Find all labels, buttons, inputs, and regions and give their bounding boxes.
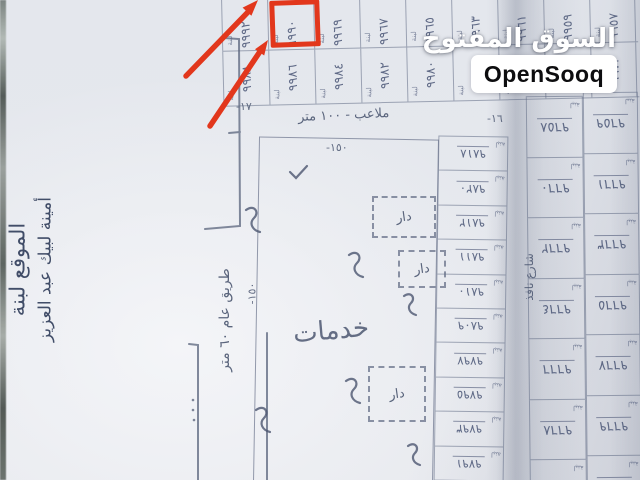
block-label: لبنة (570, 161, 580, 169)
plot-map-photo: ٩٩٩٢لبنة٩٩٩٠لبنة٩٩٦٩لبنة٩٩٦٧لبنة٩٩٦٥لبنة… (0, 0, 640, 480)
block-label: لبنة (493, 278, 503, 286)
west-plot-column: ٩٨١٨لبنة٩٨٢٠لبنة٩٨١٢لبنة٩٨١١لبنة٩٨١٠لبنة… (434, 136, 509, 480)
block-label: لبنة (227, 90, 235, 100)
dot-mark (193, 419, 196, 422)
block-label: لبنة (627, 339, 637, 347)
plot-cell: ٩٨١٠لبنة (436, 274, 506, 309)
block-label: لبنة (319, 88, 327, 98)
plot-cell: ٩٦٦٦لبنة (528, 339, 586, 400)
block-label: لبنة (573, 403, 583, 411)
plot-cell: ٩٦٦٧لبنة (585, 335, 640, 396)
plot-number: ٩٦٦٠ (538, 179, 573, 196)
block-label: لبنة (495, 140, 505, 148)
plot-number: ٩٦٥٨ (537, 118, 572, 135)
plot-number: ٩٧٩٧ (454, 352, 486, 367)
plot-cell: ٩٩٩٢لبنة (221, 0, 269, 51)
side-street-label: شارع نافذ (522, 222, 536, 332)
house-label: دار (395, 208, 413, 225)
plot-number: ٩٦٦٦ (540, 360, 575, 377)
plot-number: ٩٨١١ (456, 249, 488, 264)
plot-cell: ٩٩٨٢لبنة (360, 48, 407, 103)
block-label: لبنة (625, 97, 635, 105)
block-label: لبنة (627, 278, 637, 286)
plot-number: ٩٦٦٢ (538, 239, 573, 256)
plot-cell: ٩٨١١لبنة (436, 240, 506, 275)
handwritten-note: الموقع لبنة أمينة لبيك عبد العزيز (6, 155, 121, 385)
plot-cell: ٩٩٨٠لبنة (406, 46, 453, 101)
brand-logo: OpenSooq (471, 55, 617, 93)
plot-number: ٩٩٨٦ (285, 64, 301, 91)
plot-cell: ٩٧٩٥لبنة (435, 377, 505, 412)
services-area-outline (253, 136, 439, 480)
plot-cell: ٩٦٧٠لبنة (530, 460, 588, 480)
highlighted-plot-box (269, 0, 321, 48)
plot-number: ٩٩٨٢ (377, 61, 393, 88)
plot-number: ٩٦٦١ (594, 175, 629, 192)
plot-number: ٩٨٢٠ (457, 180, 489, 195)
note-line-2: أمينة لبيك عبد العزيز (36, 155, 56, 385)
plot-cell: ٩٩٨٤لبنة (314, 49, 361, 104)
plot-cell: ٩٦٦٣لبنة (584, 214, 640, 275)
note-line-1: الموقع لبنة (6, 155, 30, 385)
plot-cell: ٩٦٦٥لبنة (585, 274, 640, 335)
plot-number: ٩٨١٢ (456, 215, 488, 230)
plot-cell: ٩٩٦٧لبنة (359, 0, 407, 48)
plot-cell: ٩٦٧١لبنة (587, 456, 640, 480)
plot-cell: ٩٦٦٤لبنة (528, 278, 586, 339)
plot-number: ٩٩٩٢ (238, 21, 254, 48)
block-label: لبنة (571, 222, 581, 230)
plot-number: ٩٩٦٩ (330, 19, 346, 46)
main-road-label: طريق عام ٦٠ متر (217, 225, 257, 415)
block-label: لبنة (629, 460, 639, 468)
plot-number: ٩٨١٠ (455, 284, 487, 299)
dimension-top-width: -١٥٠ (326, 141, 348, 154)
block-label: لبنة (628, 399, 638, 407)
plot-cell: ٩٨١٨لبنة (438, 137, 508, 172)
block-label: لبنة (492, 347, 502, 355)
block-label: لبنة (411, 86, 419, 96)
plot-number: ٩٦٦٨ (540, 421, 575, 438)
plot-number: ٩٦٦٤ (539, 300, 574, 317)
block-label: لبنة (491, 450, 501, 458)
plot-number: ٩٧٩٣ (453, 421, 485, 436)
plot-number: ٩٨٠٩ (455, 318, 487, 333)
plot-cell: ٩٧٩٣لبنة (434, 412, 504, 447)
block-label: لبنة (572, 343, 582, 351)
street-edge-line (189, 344, 198, 480)
block-label: لبنة (365, 87, 373, 97)
plot-cell: ٩٨١٢لبنة (437, 205, 507, 240)
block-label: لبنة (491, 415, 501, 423)
plot-cell: ٩٦٦٠لبنة (526, 157, 584, 218)
house-label: دار (388, 385, 406, 402)
plot-number: ٩٦٦٣ (594, 235, 629, 252)
paper-edge (0, 0, 6, 480)
block-label: لبنة (626, 218, 636, 226)
block-label: لبنة (495, 175, 505, 183)
dimension-gap-right: -١٦ (487, 112, 503, 125)
street-tick (229, 132, 240, 133)
block-label: لبنة (226, 35, 234, 45)
house-label: دار (413, 260, 431, 277)
plot-cell: ٩٩٨٦لبنة (268, 50, 315, 105)
block-label: لبنة (364, 32, 372, 42)
block-label: لبنة (273, 89, 281, 99)
plot-cell: ٩٦٥٨لبنة (526, 97, 584, 158)
dot-mark (192, 399, 195, 402)
dot-mark (192, 409, 195, 412)
plot-number: ٩٨١٨ (457, 146, 489, 161)
plot-number: ٩٩٦٧ (376, 18, 392, 45)
dimension-gap-left: -١٧ (236, 100, 252, 113)
plot-number: ٩٧٩٥ (454, 387, 486, 402)
brand-arabic-name: السوق المفتوح (422, 24, 616, 54)
plot-number: ٩٩٨٨ (239, 65, 255, 92)
playground-strip-label: ملاعب - ١٠٠ متر (298, 106, 390, 125)
plot-cell: ٩٩٨٨لبنة (222, 51, 269, 106)
house-plot-2: دار (398, 250, 446, 288)
plot-cell: ٩٧٩١لبنة (434, 446, 504, 480)
block-label: لبنة (493, 312, 503, 320)
block-label: لبنة (494, 209, 504, 217)
brand-latin-name: OpenSooq (484, 61, 604, 88)
block-label: لبنة (494, 243, 504, 251)
plot-number: ٩٦٦٩ (596, 417, 631, 434)
plot-cell: ٩٨٢٠لبنة (437, 171, 507, 206)
plot-number: ٩٩٨٠ (423, 60, 439, 87)
plot-number: ٩٧٩١ (453, 455, 485, 470)
block-label: لبنة (457, 85, 465, 95)
house-plot-3: دار (368, 366, 426, 422)
block-label: لبنة (410, 31, 418, 41)
plot-cell: ٩٦٦٨لبنة (529, 399, 587, 460)
plot-number: ٩٦٦٥ (595, 296, 630, 313)
plot-number: ٩٦٥٩ (593, 114, 628, 131)
block-label: لبنة (492, 381, 502, 389)
plot-cell: ٩٦٥٩لبنة (583, 93, 639, 154)
east-plot-column-2: ٩٦٥٩لبنة٩٦٦١لبنة٩٦٦٣لبنة٩٦٦٥لبنة٩٦٦٧لبنة… (583, 92, 640, 480)
block-label: لبنة (572, 282, 582, 290)
plot-cell: ٩٦٦٩لبنة (586, 395, 640, 456)
plot-cell: ٩٨٠٩لبنة (436, 308, 506, 343)
block-label: لبنة (625, 157, 635, 165)
block-label: لبنة (574, 464, 584, 472)
plot-number: ٩٩٨٤ (331, 62, 347, 89)
plot-number: ٩٦٦٧ (596, 356, 631, 373)
plot-cell: ٩٦٦١لبنة (583, 153, 639, 214)
plot-cell: ٩٧٩٧لبنة (435, 343, 505, 378)
house-plot-1: دار (372, 196, 436, 238)
block-label: لبنة (570, 101, 580, 109)
